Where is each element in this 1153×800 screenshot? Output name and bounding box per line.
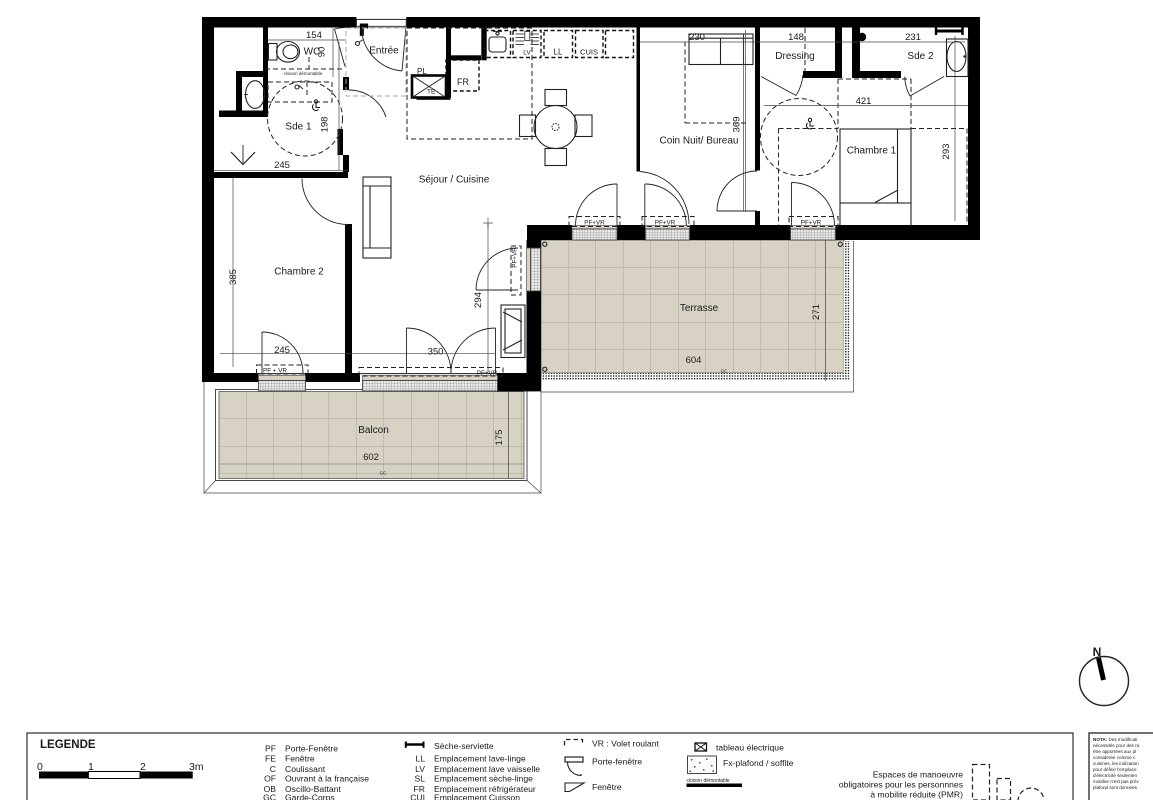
svg-text:OF: OF — [264, 774, 276, 784]
svg-text:Garde-Corps: Garde-Corps — [285, 793, 335, 800]
svg-text:2: 2 — [140, 761, 146, 773]
svg-text:être apportées aux pl: être apportées aux pl — [1093, 749, 1136, 754]
svg-text:Porte-Fenêtre: Porte-Fenêtre — [285, 744, 338, 754]
svg-text:d'électricité seulemen: d'électricité seulemen — [1093, 773, 1137, 778]
svg-text:Emplacement sèche-linge: Emplacement sèche-linge — [434, 774, 533, 784]
svg-text:245: 245 — [274, 160, 290, 171]
svg-text:271: 271 — [811, 304, 822, 320]
svg-text:pour définir l'emplace: pour définir l'emplace — [1093, 767, 1137, 772]
svg-text:3m: 3m — [189, 761, 204, 773]
svg-text:NOTA: Des modificati: NOTA: Des modificati — [1093, 737, 1137, 742]
svg-text:GC: GC — [263, 793, 276, 800]
svg-text:nécessités pour des ra: nécessités pour des ra — [1093, 743, 1140, 748]
svg-text:CUIS: CUIS — [580, 48, 598, 57]
svg-text:Fx-plafond / soffite: Fx-plafond / soffite — [723, 758, 794, 768]
svg-text:369: 369 — [732, 117, 743, 133]
svg-text:LEGENDE: LEGENDE — [40, 739, 96, 751]
svg-text:Chambre 1: Chambre 1 — [847, 146, 897, 157]
svg-text:231: 231 — [905, 32, 921, 43]
svg-text:385: 385 — [228, 269, 239, 285]
svg-text:Emplacement lave-linge: Emplacement lave-linge — [434, 754, 526, 764]
svg-text:cuisines, les indication: cuisines, les indication — [1093, 761, 1139, 766]
svg-text:PL: PL — [417, 67, 427, 76]
svg-text:Emplacement Cuisson: Emplacement Cuisson — [434, 793, 520, 800]
svg-text:N: N — [1093, 645, 1102, 659]
svg-text:Balcon: Balcon — [358, 425, 389, 436]
svg-text:GC: GC — [721, 369, 729, 374]
svg-text:PF+VR: PF+VR — [801, 220, 822, 227]
svg-text:CUI: CUI — [410, 793, 425, 800]
svg-text:Fenêtre: Fenêtre — [592, 782, 622, 792]
svg-text:Coin Nuit/ Bureau: Coin Nuit/ Bureau — [660, 136, 739, 147]
svg-text:PF+VR: PF+VR — [584, 220, 605, 227]
svg-text:Emplacement lave vaisselle: Emplacement lave vaisselle — [434, 764, 540, 774]
svg-text:LV: LV — [523, 50, 531, 57]
svg-text:602: 602 — [363, 452, 379, 463]
svg-text:Terrasse: Terrasse — [680, 303, 719, 314]
svg-text:Espaces de manoeuvre: Espaces de manoeuvre — [873, 770, 964, 780]
svg-text:198: 198 — [320, 117, 331, 133]
svg-text:tableau électrique: tableau électrique — [716, 743, 784, 753]
svg-text:LL: LL — [415, 754, 425, 764]
svg-text:PF+VR: PF+VR — [655, 220, 676, 227]
svg-text:obligatoires pour les personnn: obligatoires pour les personnnes — [839, 780, 963, 790]
svg-text:LV: LV — [415, 764, 425, 774]
svg-text:Ouvrant à la française: Ouvrant à la française — [285, 774, 369, 784]
svg-text:PF+VR: PF+VR — [477, 370, 498, 377]
svg-text:C: C — [270, 764, 276, 774]
svg-text:Porte-fenêtre: Porte-fenêtre — [592, 757, 642, 767]
svg-text:PF + VR: PF + VR — [263, 368, 287, 375]
svg-text:Fenêtre: Fenêtre — [285, 754, 315, 764]
svg-text:Coulissant: Coulissant — [285, 764, 326, 774]
svg-text:PF+VR: PF+VR — [512, 247, 519, 268]
svg-text:PF: PF — [265, 744, 276, 754]
svg-text:Sde 1: Sde 1 — [285, 122, 312, 133]
svg-text:Sèche-serviette: Sèche-serviette — [434, 741, 494, 751]
svg-text:considérée comme c: considérée comme c — [1093, 755, 1136, 760]
svg-text:TE: TE — [427, 89, 436, 96]
svg-text:FE: FE — [265, 754, 276, 764]
svg-text:148: 148 — [788, 32, 804, 43]
svg-text:Dressing: Dressing — [775, 51, 814, 62]
svg-text:plafond sont données: plafond sont données — [1093, 785, 1138, 790]
svg-text:293: 293 — [941, 144, 952, 160]
svg-text:154: 154 — [306, 30, 322, 41]
svg-text:Entrée: Entrée — [369, 46, 399, 57]
svg-text:SL: SL — [414, 774, 425, 784]
svg-text:175: 175 — [494, 430, 505, 446]
svg-text:0: 0 — [37, 761, 43, 773]
svg-text:421: 421 — [856, 96, 872, 107]
svg-text:cloison démontable: cloison démontable — [284, 71, 323, 76]
svg-text:à mobilite réduite (PMR): à mobilite réduite (PMR) — [870, 790, 963, 800]
svg-text:294: 294 — [473, 292, 484, 308]
svg-text:245: 245 — [274, 345, 290, 356]
svg-text:cloison démontable: cloison démontable — [687, 778, 730, 784]
svg-text:LL: LL — [554, 48, 563, 57]
svg-text:Chambre 2: Chambre 2 — [274, 267, 324, 278]
svg-text:GC: GC — [380, 471, 388, 476]
svg-text:230: 230 — [689, 32, 705, 43]
svg-text:VR : Volet roulant: VR : Volet roulant — [592, 739, 659, 749]
svg-text:Séjour / Cuisine: Séjour / Cuisine — [419, 175, 490, 186]
svg-text:WC: WC — [304, 47, 321, 58]
svg-text:mobilier n'est pas prév: mobilier n'est pas prév — [1093, 779, 1140, 784]
svg-text:604: 604 — [686, 355, 702, 366]
svg-text:Sde 2: Sde 2 — [907, 51, 934, 62]
svg-text:FR: FR — [457, 77, 469, 87]
svg-text:350: 350 — [428, 347, 444, 358]
